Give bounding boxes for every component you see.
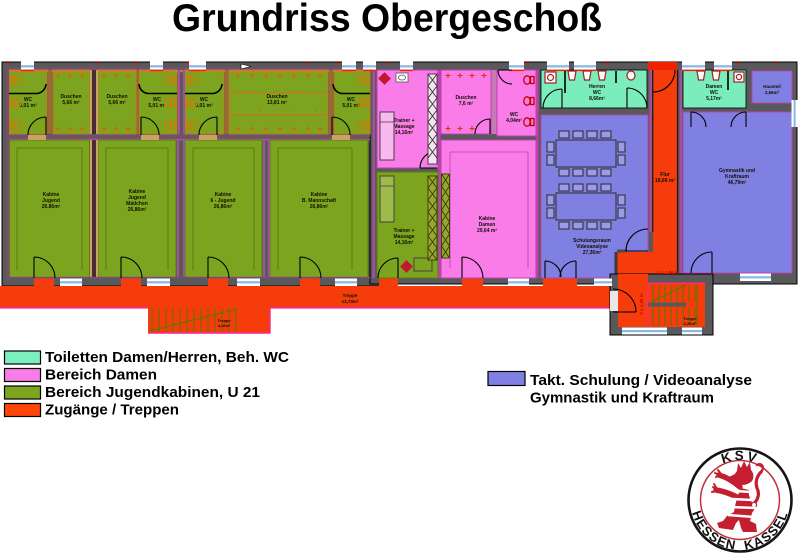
svg-text:46,79m²: 46,79m² bbox=[728, 180, 747, 186]
svg-text:Toiletten Damen/Herren, Beh. W: Toiletten Damen/Herren, Beh. WC bbox=[45, 349, 289, 366]
svg-text:2,26m²: 2,26m² bbox=[684, 321, 697, 326]
svg-text:13,81 m²: 13,81 m² bbox=[267, 100, 287, 106]
svg-text:Bereich Damen: Bereich Damen bbox=[45, 367, 157, 384]
svg-text:Bereich Jugendkabinen, U 21: Bereich Jugendkabinen, U 21 bbox=[45, 384, 260, 401]
svg-text:4,16m²: 4,16m² bbox=[218, 323, 231, 328]
svg-text:4,04m²: 4,04m² bbox=[506, 118, 522, 124]
svg-text:26,86m²: 26,86m² bbox=[310, 204, 329, 210]
svg-text:5,66 m²: 5,66 m² bbox=[62, 100, 80, 106]
svg-text:18,66 m²: 18,66 m² bbox=[655, 178, 675, 184]
svg-text:5,01 m²: 5,01 m² bbox=[148, 103, 166, 109]
svg-text:26,86m²: 26,86m² bbox=[214, 204, 233, 210]
svg-text:3 x 1,86 m: 3 x 1,86 m bbox=[657, 270, 679, 275]
svg-text:Treppe: Treppe bbox=[343, 293, 358, 298]
svg-text:Gymnastik und Kraftraum: Gymnastik und Kraftraum bbox=[530, 390, 714, 407]
svg-text:2,66m²: 2,66m² bbox=[765, 90, 780, 95]
svg-text:14,16m²: 14,16m² bbox=[395, 240, 414, 246]
svg-text:8,66m²: 8,66m² bbox=[589, 96, 605, 102]
svg-text:26,86m²: 26,86m² bbox=[42, 204, 61, 210]
svg-text:5,01 m²: 5,01 m² bbox=[195, 103, 213, 109]
svg-text:29,64 m²: 29,64 m² bbox=[477, 228, 497, 234]
svg-text:5,17m²: 5,17m² bbox=[706, 96, 722, 102]
svg-text:5,01 m²: 5,01 m² bbox=[19, 103, 37, 109]
svg-text:14,16m²: 14,16m² bbox=[395, 130, 414, 136]
svg-text:Zugänge / Treppen: Zugänge / Treppen bbox=[45, 402, 179, 419]
svg-text:7,6 m²: 7,6 m² bbox=[459, 101, 474, 107]
svg-text:13,73m²: 13,73m² bbox=[342, 299, 359, 304]
svg-text:3 x 1,86 m: 3 x 1,86 m bbox=[639, 293, 644, 315]
svg-text:Takt. Schulung / Videoanalyse: Takt. Schulung / Videoanalyse bbox=[530, 372, 752, 389]
svg-text:Hausteil: Hausteil bbox=[763, 84, 781, 89]
svg-text:26,86m²: 26,86m² bbox=[128, 207, 147, 213]
svg-text:27,36m²: 27,36m² bbox=[583, 250, 602, 256]
svg-text:5,66 m²: 5,66 m² bbox=[108, 100, 126, 106]
svg-text:Grundriss Obergeschoß: Grundriss Obergeschoß bbox=[172, 0, 602, 40]
